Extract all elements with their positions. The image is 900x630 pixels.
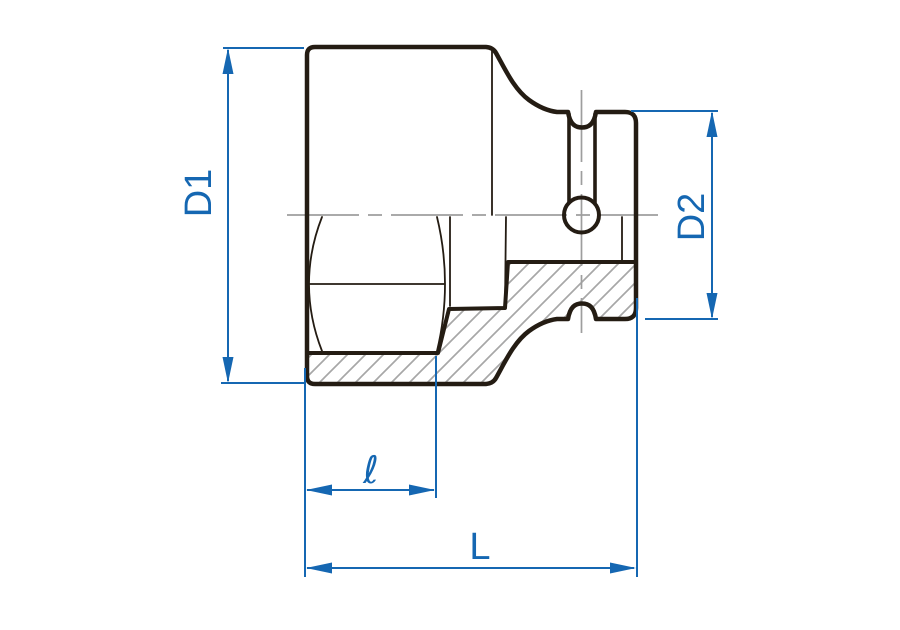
ell-arrow-left xyxy=(306,485,332,496)
l-arrow-right xyxy=(610,563,636,574)
l-arrow-left xyxy=(306,563,332,574)
ell-label: ℓ xyxy=(362,448,379,492)
section-hatch-region xyxy=(307,262,636,384)
d1-arrow-top xyxy=(223,48,234,74)
d1-label: D1 xyxy=(178,169,220,218)
technical-drawing-canvas: D1 D2 ℓ L xyxy=(0,0,900,630)
d2-arrow-bottom xyxy=(707,293,718,319)
dimension-ell: ℓ xyxy=(305,356,436,577)
d2-label: D2 xyxy=(671,193,713,242)
d2-arrow-top xyxy=(707,111,718,137)
dimension-d1: D1 xyxy=(178,48,304,383)
socket-drawing: D1 D2 ℓ L xyxy=(0,0,900,630)
l-label: L xyxy=(469,526,490,568)
ell-arrow-right xyxy=(409,485,435,496)
d1-arrow-bottom xyxy=(223,357,234,383)
